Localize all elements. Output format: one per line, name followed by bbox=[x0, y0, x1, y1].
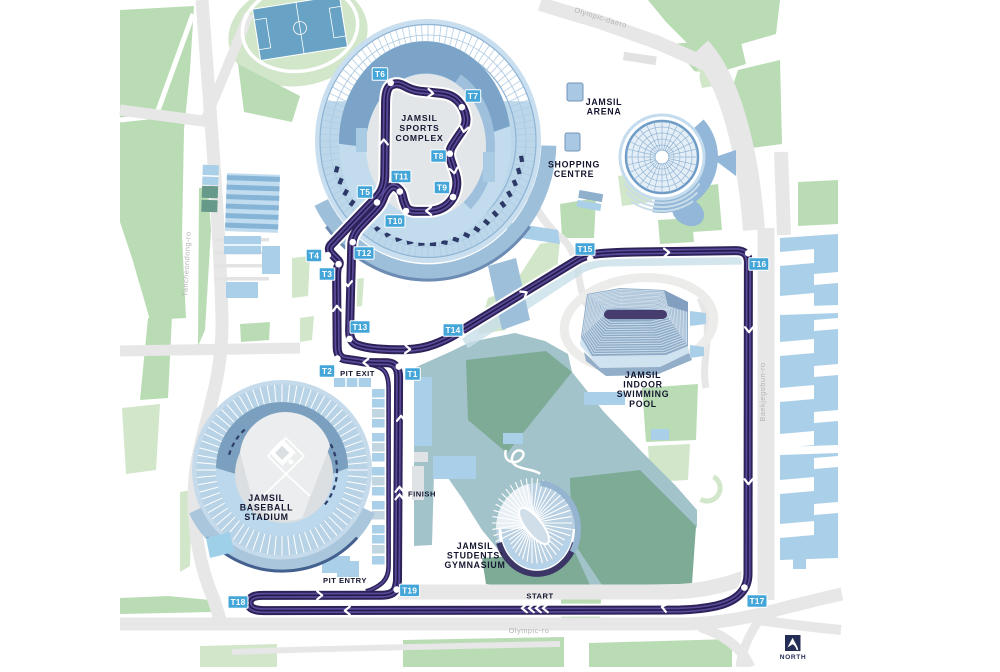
svg-text:T16: T16 bbox=[751, 259, 766, 269]
svg-text:T2: T2 bbox=[322, 366, 332, 376]
svg-text:NORTH: NORTH bbox=[780, 654, 806, 661]
svg-text:T6: T6 bbox=[375, 69, 385, 79]
svg-text:JAMSILARENA: JAMSILARENA bbox=[586, 97, 622, 117]
svg-text:T1: T1 bbox=[407, 369, 417, 379]
svg-text:T4: T4 bbox=[309, 251, 319, 261]
svg-text:T11: T11 bbox=[394, 172, 409, 182]
svg-text:Olympic-ro: Olympic-ro bbox=[509, 626, 550, 635]
svg-text:START: START bbox=[526, 592, 553, 601]
svg-text:T5: T5 bbox=[360, 187, 370, 197]
svg-text:PIT ENTRY: PIT ENTRY bbox=[323, 576, 367, 585]
svg-text:PIT EXIT: PIT EXIT bbox=[340, 369, 375, 378]
svg-text:T8: T8 bbox=[433, 151, 443, 161]
svg-text:T13: T13 bbox=[352, 322, 367, 332]
svg-text:T7: T7 bbox=[468, 91, 478, 101]
svg-text:T12: T12 bbox=[356, 248, 371, 258]
svg-text:T19: T19 bbox=[402, 585, 417, 595]
svg-text:JAMSILSPORTSCOMPLEX: JAMSILSPORTSCOMPLEX bbox=[395, 113, 443, 143]
svg-text:Baekjegobun-ro: Baekjegobun-ro bbox=[758, 362, 767, 421]
svg-text:FINISH: FINISH bbox=[408, 490, 436, 499]
svg-text:T18: T18 bbox=[230, 597, 245, 607]
svg-text:T10: T10 bbox=[387, 216, 402, 226]
svg-text:T14: T14 bbox=[445, 325, 460, 335]
svg-text:T17: T17 bbox=[749, 596, 764, 606]
svg-text:SHOPPINGCENTRE: SHOPPINGCENTRE bbox=[548, 160, 600, 180]
svg-text:T3: T3 bbox=[322, 269, 332, 279]
svg-text:T9: T9 bbox=[437, 183, 447, 193]
svg-text:T15: T15 bbox=[577, 244, 592, 254]
